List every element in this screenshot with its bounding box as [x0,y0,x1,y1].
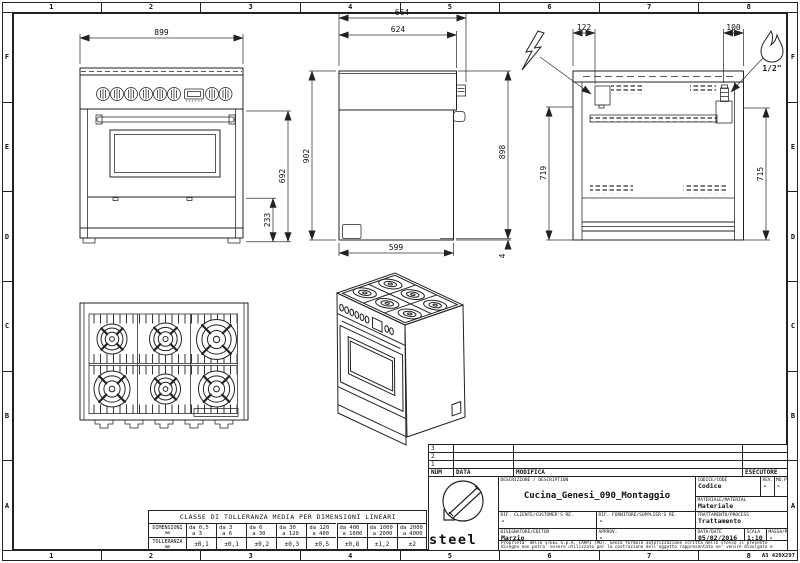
tolerance-range: da 120a 400 [306,523,336,537]
burner [197,320,237,360]
revision-header-esecutore: ESECUTORE [742,468,787,476]
side-handle [454,112,466,122]
burner [150,323,182,355]
tolerance-range: da 6a 30 [246,523,276,537]
vent-slots [690,84,716,94]
cooktop-top-view [80,303,248,428]
tolerance-range: da 400a 1000 [337,523,367,537]
revision-row-esecutore [742,444,787,452]
burner [151,374,181,404]
burner [199,371,235,407]
rating-label [343,225,362,239]
scala-cell: SCALA1:10 [744,528,766,540]
revision-header-modifica: MODIFICA [513,468,742,476]
revision-row-num: 3 [428,444,453,452]
massa-cell: MASSA/MASS kg- [766,528,787,540]
dim-side-height: 902 [302,149,311,164]
dim-rear-gas-h: 715 [756,167,765,182]
revision-row-data [453,444,513,452]
oven-window [110,130,220,177]
dim-front-width: 899 [154,28,169,37]
rif-fornitore-cell: RIF. FORNITORE/SUPPLIER'S RE.- [596,511,695,528]
rear-dimensions: 122 100 719 715 [539,23,770,240]
tolerance-range: da 2000a 4000 [397,523,427,537]
dim-rear-electric-h: 719 [539,166,548,181]
tolerance-range: da 30a 120 [276,523,306,537]
revision-row-num: 2 [428,452,453,460]
oven-handle [96,115,235,124]
materiale-cell: MATERIALE/MATERIALMateriale [695,496,787,511]
side-dimensions: 664 624 902 898 4 599 [302,8,511,258]
lightning-bolt-icon [522,31,544,70]
logo-name: steel [429,532,477,548]
tolerance-range: da 1000a 2000 [367,523,397,537]
dim-front-height: 692 [278,169,287,184]
burner [94,371,130,407]
dim-side-height-back: 898 [498,145,507,160]
dim-side-depth-base: 599 [389,243,404,252]
company-logo: steel stile in cucina [428,476,498,550]
dim-side-depth-top: 624 [391,25,406,34]
vent-slots [684,184,728,194]
disegnatore-cell: DISEGNATORE/EDITORMarzio [498,528,596,540]
approv-cell: APPROV.- [596,528,695,540]
tolerance-range: da 0,5a 3 [186,523,216,537]
dim-side-plinth: 4 [498,253,507,258]
dim-rear-gas-x: 100 [726,23,741,32]
cooktop-feet [95,420,233,428]
steel-logo-icon [429,477,497,525]
revision-row-modifica [513,452,742,460]
electrical-junction-box [595,86,610,108]
side-view [339,71,466,240]
revision-row-modifica [513,444,742,452]
codice-cell: CODICE/CODECodice [695,476,760,496]
tolerance-table-title: CLASSE DI TOLLERANZA MEDIA PER DIMENSION… [148,510,427,523]
legal-notice: Proprieta' dello STEEL S.p.A. CARPI (MO)… [498,540,787,550]
front-view [80,68,243,243]
drawing-sheet: 1 2 3 4 5 6 7 8 1 2 3 4 5 6 7 8 F E D C … [0,0,800,563]
drawing-title: Cucina_Genesi_090_Montaggio [499,491,695,501]
oven-display [185,89,204,101]
rif-cliente-cell: RIF. CLIENTE/CUSTOMER'S RE.- [498,511,596,528]
control-knobs [97,88,233,101]
tolerance-row-label: DIMENSIONI mm [148,523,186,537]
revision-row-esecutore [742,452,787,460]
revision-header-num: NUM [428,468,453,476]
vent-slots [611,84,643,94]
rev-cell: REV.- [760,476,774,496]
description-cell: DESCRIZIONE / DESCRIPTION Cucina_Genesi_… [498,476,695,511]
dim-rear-electric-x: 122 [577,23,592,32]
flame-icon [761,31,783,62]
dim-front-drawer: 233 [263,213,272,228]
revision-row-esecutore [742,460,787,468]
burner [97,324,127,354]
revision-row-modifica [513,460,742,468]
burner-rail [590,115,717,122]
gas-connection-size: 1/2" [762,64,781,73]
dim-side-depth-total: 664 [395,8,410,17]
vent-slots [590,184,633,194]
gas-leader-line [731,58,763,92]
revision-header-data: DATA [453,468,513,476]
electric-leader-line [540,57,591,94]
revision-row-data [453,460,513,468]
rear-view [573,71,744,240]
isometric-view [337,273,465,445]
trattamento-cell: TRATTAMENTO/PROCESSTrattamento [695,511,787,528]
revision-row-num: 1 [428,460,453,468]
data-cell: DATA/DATE05/02/2016 [695,528,744,540]
gas-connection-fitting [716,85,732,123]
tolerance-range: da 3a 6 [216,523,246,537]
mupi-cell: MU.PI.- [774,476,788,496]
side-knob [457,85,466,96]
revision-row-data [453,452,513,460]
